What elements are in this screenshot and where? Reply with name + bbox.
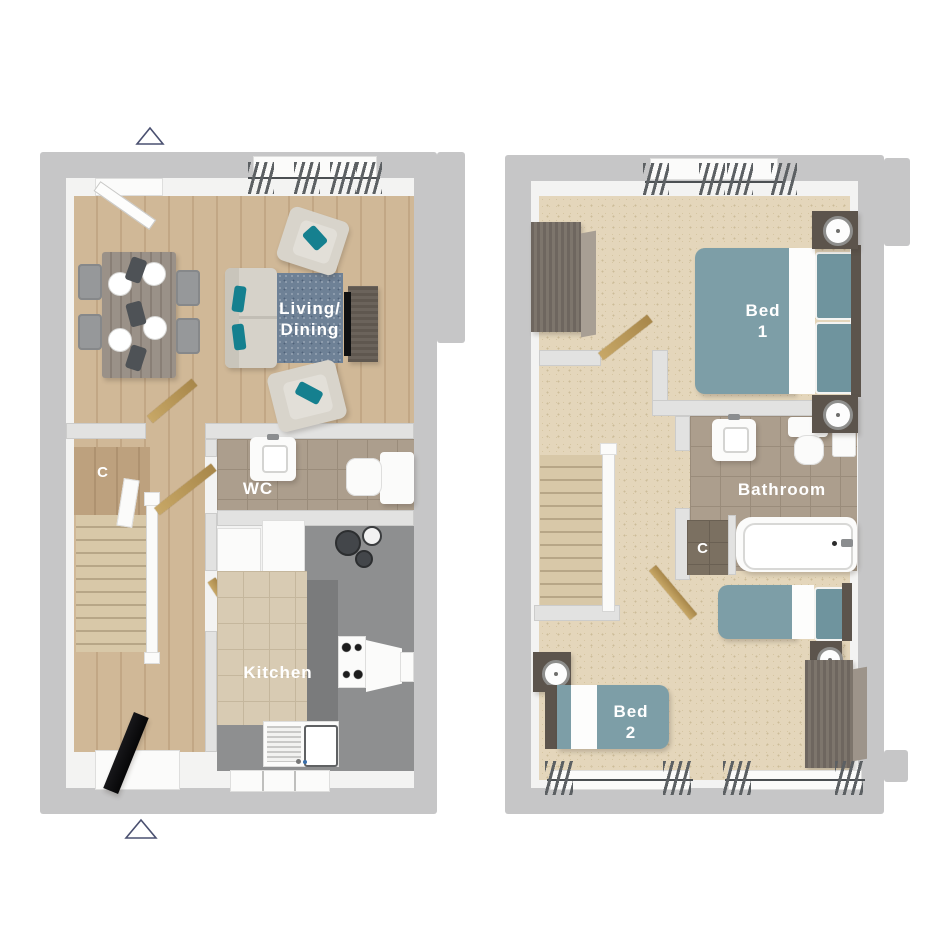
bed-sheet-fold [792,585,814,639]
toilet-bowl [346,458,382,496]
wardrobe-side [853,667,867,761]
newel-post [600,443,617,455]
floorplan-canvas: C WC Kitchen [0,0,945,945]
wall [205,513,217,571]
wardrobe-side [581,231,596,338]
curtains [294,162,320,194]
first-floor-plan: Bathroom C Bed 1 Bed 2 [505,155,910,814]
newel-post [144,652,160,664]
tv-unit [348,286,378,362]
dining-chair [176,318,200,354]
wc-basin-tap [267,434,279,440]
wall [675,416,690,451]
curtains [643,163,669,195]
bathtub-basin [743,523,853,570]
wall [539,350,601,366]
bed-sheet-fold [789,248,815,394]
wall [205,439,217,457]
exterior-wall-chimney [437,152,465,343]
kitchen-fridge [262,520,305,578]
stair-banister [146,498,158,660]
sofa-back [225,268,239,368]
exterior-wall-chimney [884,750,908,782]
headboard [545,685,557,749]
curtains [727,163,753,195]
bed-sheet-fold [571,685,597,749]
oven-handle [400,652,414,682]
bedside-lamp [823,216,853,246]
pillow [815,252,855,320]
dining-chair [78,264,102,300]
curtains [356,162,382,194]
sink-drainer [267,726,301,762]
plate [108,328,132,352]
curtains [699,163,725,195]
sofa-seam [239,316,277,319]
wardrobe [531,222,581,332]
cupboard-floor [687,520,728,575]
cooking-pot [362,526,382,546]
bedside-lamp [542,660,570,688]
wall [205,631,217,752]
curtains [771,163,797,195]
rug [277,273,343,363]
kitchen-appliance [217,528,261,572]
headboard [842,583,852,641]
single-bed-mattress [718,585,796,639]
curtains [330,162,356,194]
sink-basin [304,725,338,767]
dining-chair [176,270,200,306]
toilet-cistern [380,452,414,504]
staircase [76,515,148,652]
bath-plug [832,541,837,546]
curtains [663,761,691,795]
sink-tap [296,759,301,764]
wall [217,510,414,526]
bath-tap [841,539,853,547]
wall [66,423,146,439]
kitchen-window [230,770,330,792]
curtains [545,761,573,795]
double-bed-mattress [695,248,795,394]
sink-tap [303,760,307,764]
curtains [835,761,863,795]
tv [344,292,351,356]
plate [143,316,167,340]
curtains [248,162,274,194]
staircase [540,455,602,605]
headboard [851,245,861,397]
bedside-lamp [823,400,853,430]
toilet-bowl [794,435,824,465]
stair-banister [602,447,615,612]
oven [366,640,402,692]
kitchen-counter-front [307,580,338,725]
entry-arrow-icon [124,818,158,840]
bathroom-basin-bowl [723,427,749,453]
wc-basin-bowl [262,445,288,473]
cooking-pot [355,550,373,568]
pillow [815,322,855,394]
hob [338,636,366,688]
dining-chair [78,314,102,350]
kitchen-floor [217,571,307,725]
wardrobe [805,660,853,768]
ground-floor-plan: C WC Kitchen [40,152,464,814]
curtains [723,761,751,795]
wall [728,515,736,575]
basin-tap [728,414,740,420]
exterior-wall-chimney [884,158,910,246]
entry-arrow-icon [135,126,165,146]
